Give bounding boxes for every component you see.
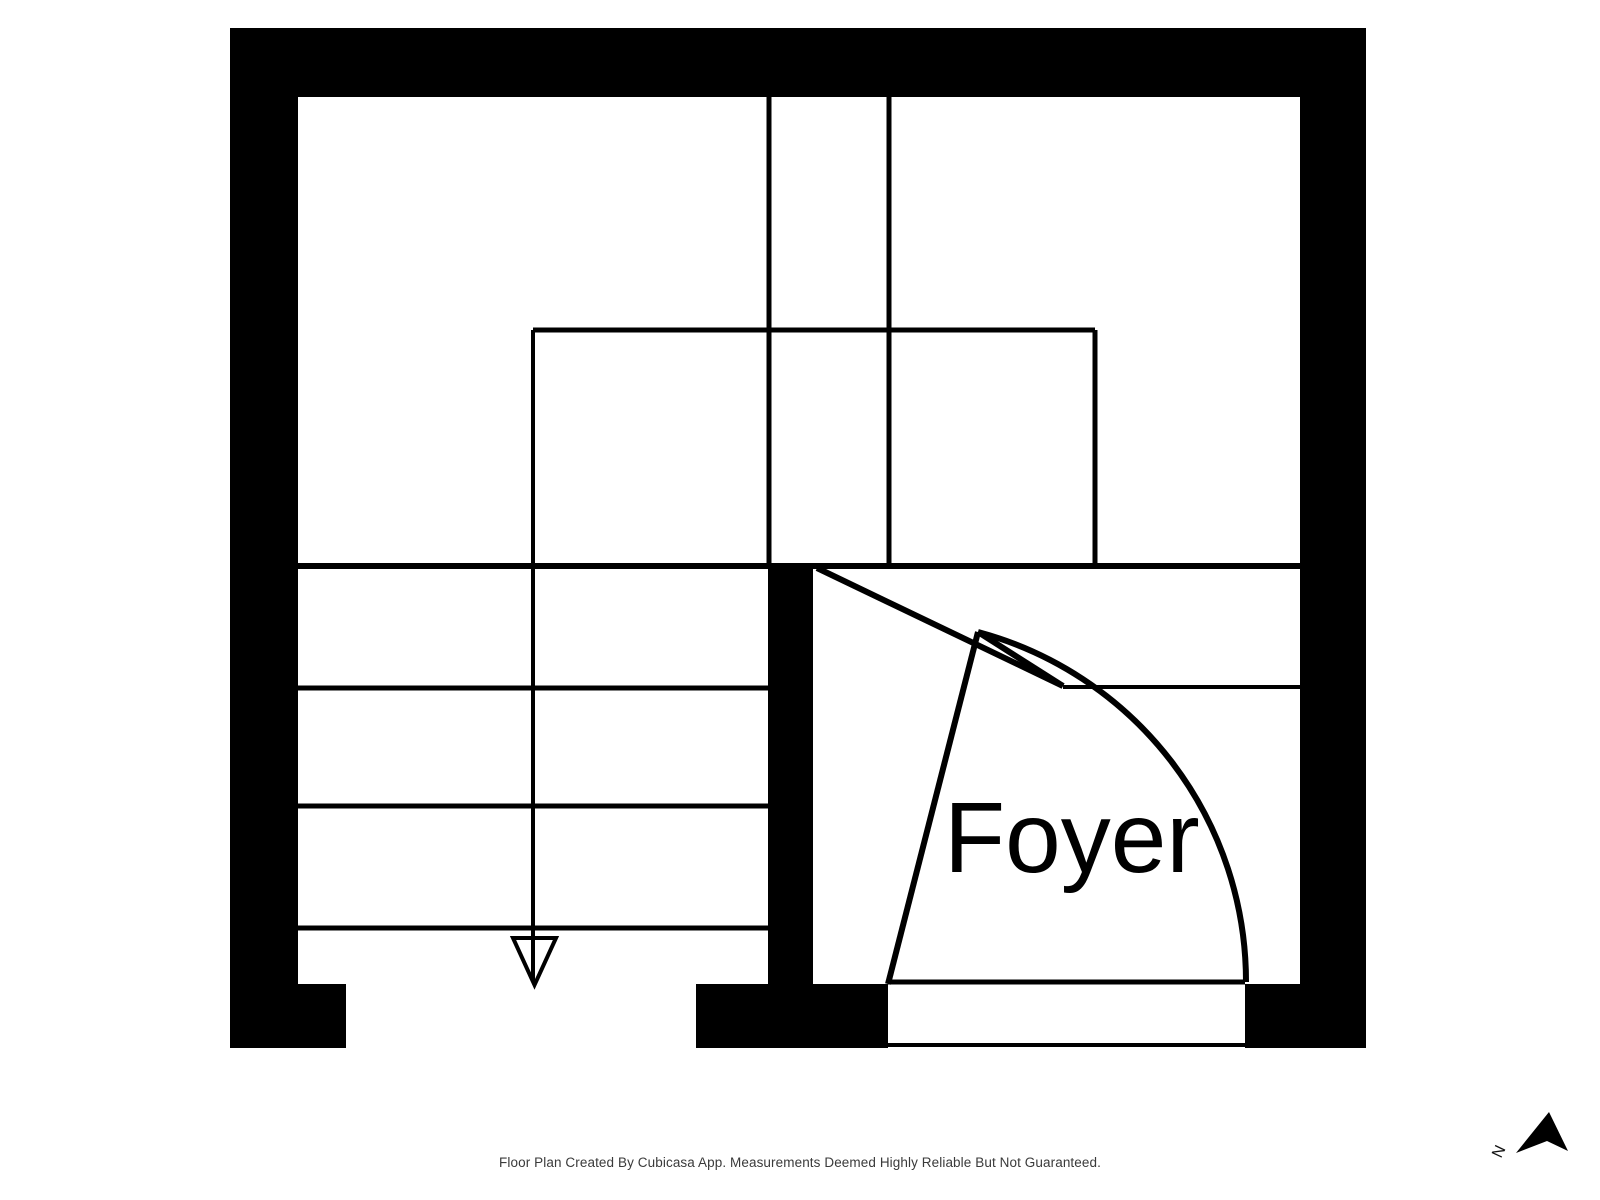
wall-top <box>230 28 1366 97</box>
footer-disclaimer-text: Floor Plan Created By Cubicasa App. Meas… <box>499 1155 1101 1170</box>
wall-left <box>230 28 298 1048</box>
wall-bottom-right <box>1245 984 1366 1048</box>
room-label-foyer: Foyer <box>944 788 1200 888</box>
wall-right <box>1300 28 1366 1048</box>
walls-group <box>230 28 1366 1048</box>
floor-plan-page: Foyer Floor Plan Created By Cubicasa App… <box>0 0 1600 1200</box>
wall-foyer-left <box>768 566 813 1048</box>
door-group <box>817 568 1246 984</box>
north-arrow <box>1516 1112 1568 1153</box>
floor-plan-svg <box>0 0 1600 1200</box>
door-frame-line <box>817 568 1063 686</box>
wall-bottom-middle <box>696 984 888 1048</box>
wall-bottom-left <box>298 984 346 1048</box>
compass-group <box>1516 1112 1568 1153</box>
